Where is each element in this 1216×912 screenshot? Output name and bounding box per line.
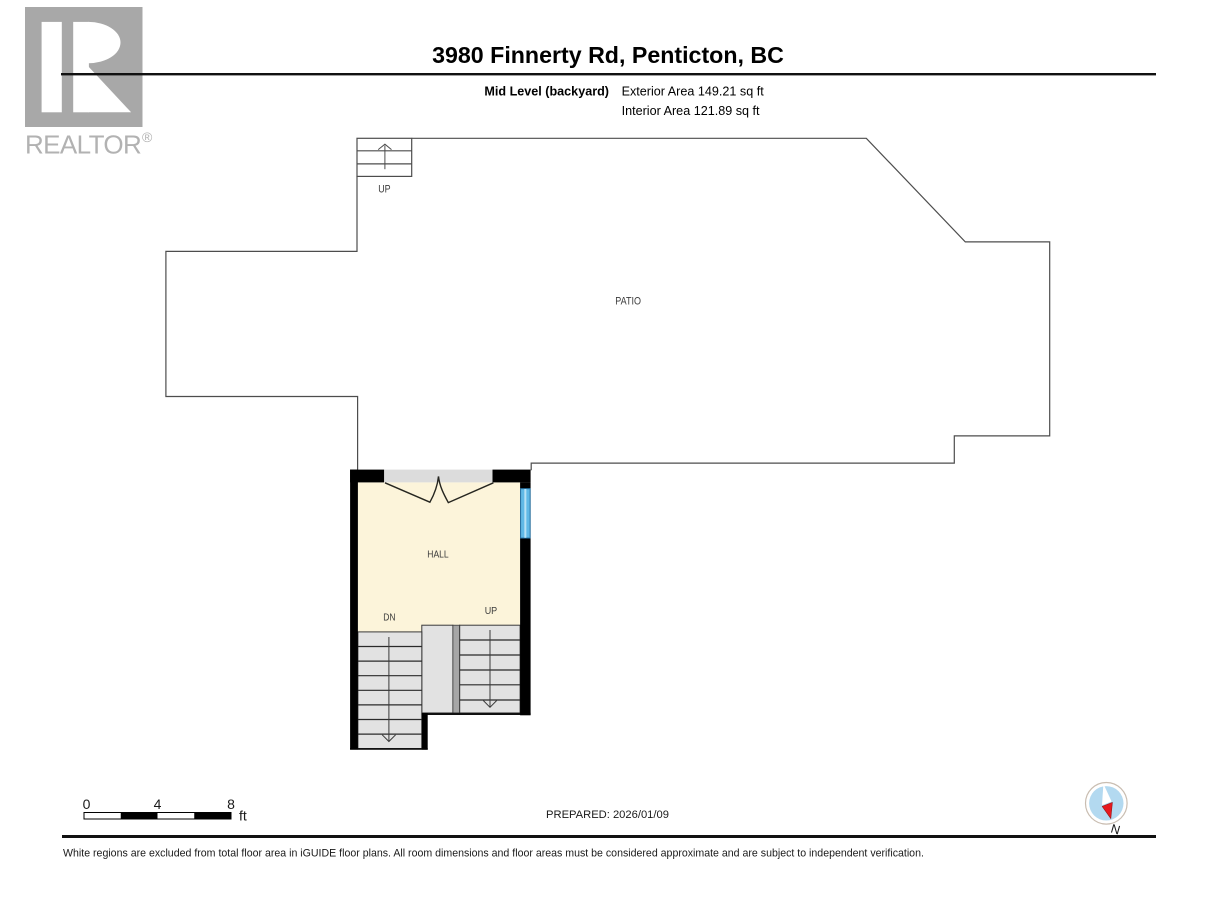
svg-text:UP: UP — [485, 606, 498, 617]
svg-text:UP: UP — [378, 184, 390, 196]
svg-text:0: 0 — [83, 796, 91, 812]
svg-text:4: 4 — [154, 796, 162, 812]
svg-text:Exterior Area 149.21 sq ft: Exterior Area 149.21 sq ft — [622, 85, 765, 99]
svg-text:White regions are excluded fro: White regions are excluded from total fl… — [63, 848, 924, 860]
svg-text:REALTOR: REALTOR — [25, 130, 141, 160]
svg-text:®: ® — [142, 129, 153, 145]
svg-text:3980 Finnerty Rd, Penticton, B: 3980 Finnerty Rd, Penticton, BC — [432, 42, 784, 68]
svg-text:Mid Level (backyard): Mid Level (backyard) — [484, 85, 609, 99]
svg-text:PATIO: PATIO — [615, 296, 641, 308]
svg-text:PREPARED: 2026/01/09: PREPARED: 2026/01/09 — [546, 809, 669, 821]
svg-text:HALL: HALL — [427, 549, 449, 560]
svg-text:DN: DN — [383, 613, 395, 624]
svg-text:ft: ft — [239, 808, 247, 824]
svg-text:8: 8 — [227, 796, 235, 812]
svg-text:Interior Area 121.89 sq ft: Interior Area 121.89 sq ft — [622, 104, 760, 118]
